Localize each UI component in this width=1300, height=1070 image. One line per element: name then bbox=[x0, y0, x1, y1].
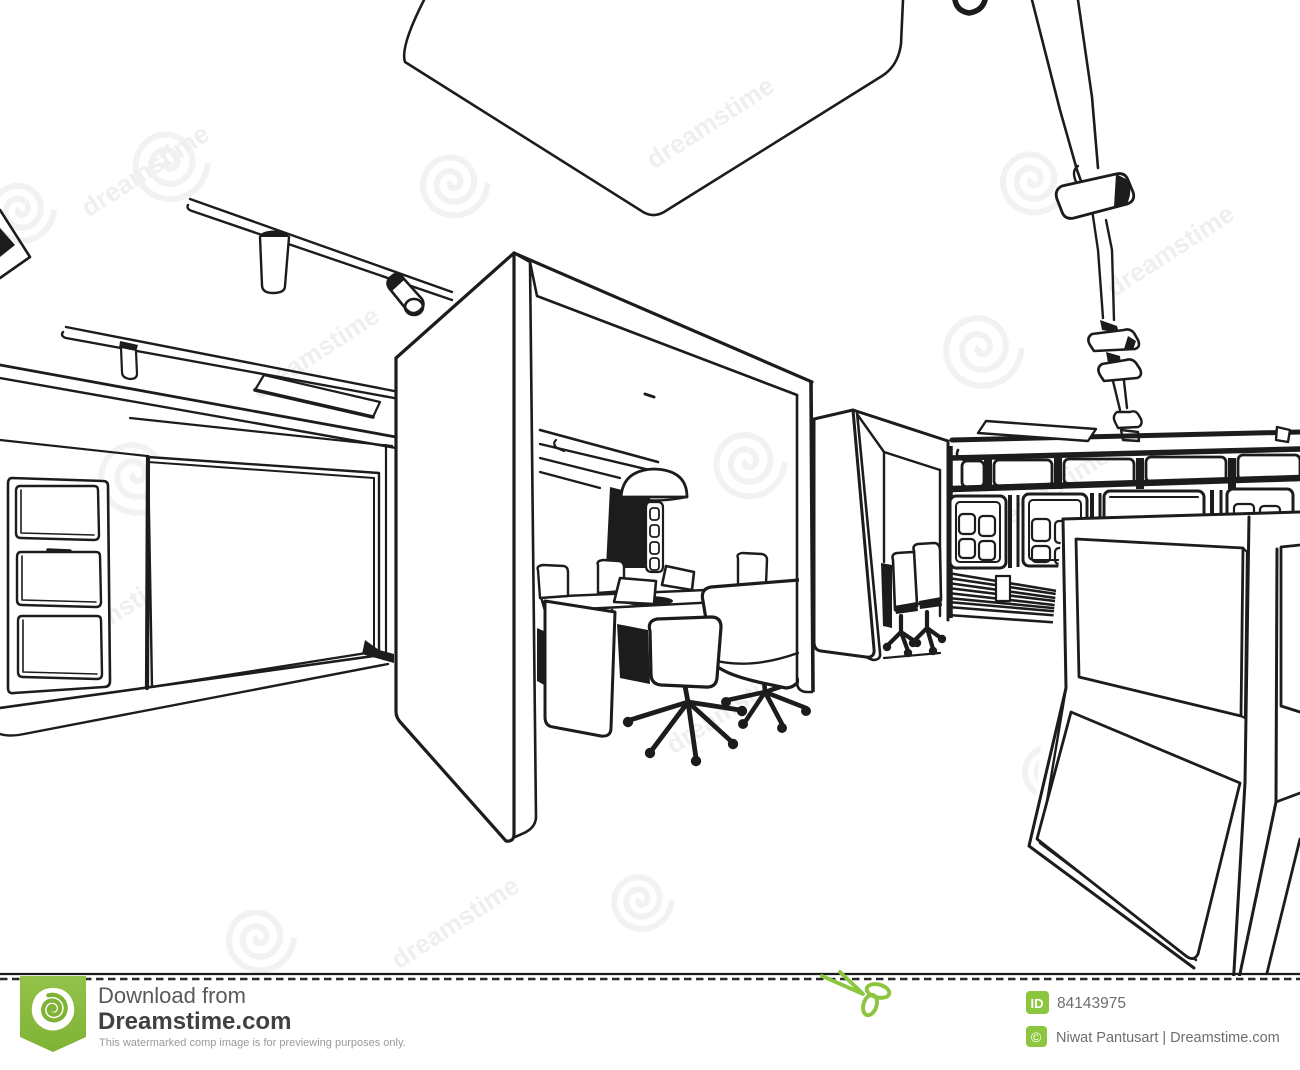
svg-text:Dreamstime.com: Dreamstime.com bbox=[98, 1008, 291, 1035]
svg-text:ID: ID bbox=[1031, 996, 1044, 1011]
svg-text:This watermarked comp image is: This watermarked comp image is for previ… bbox=[99, 1037, 406, 1049]
svg-text:Niwat Pantusart | Dreamstime.c: Niwat Pantusart | Dreamstime.com bbox=[1056, 1030, 1280, 1046]
svg-text:84143975: 84143975 bbox=[1057, 995, 1126, 1012]
svg-text:Download from: Download from bbox=[98, 983, 246, 1008]
svg-text:©: © bbox=[1031, 1029, 1042, 1045]
